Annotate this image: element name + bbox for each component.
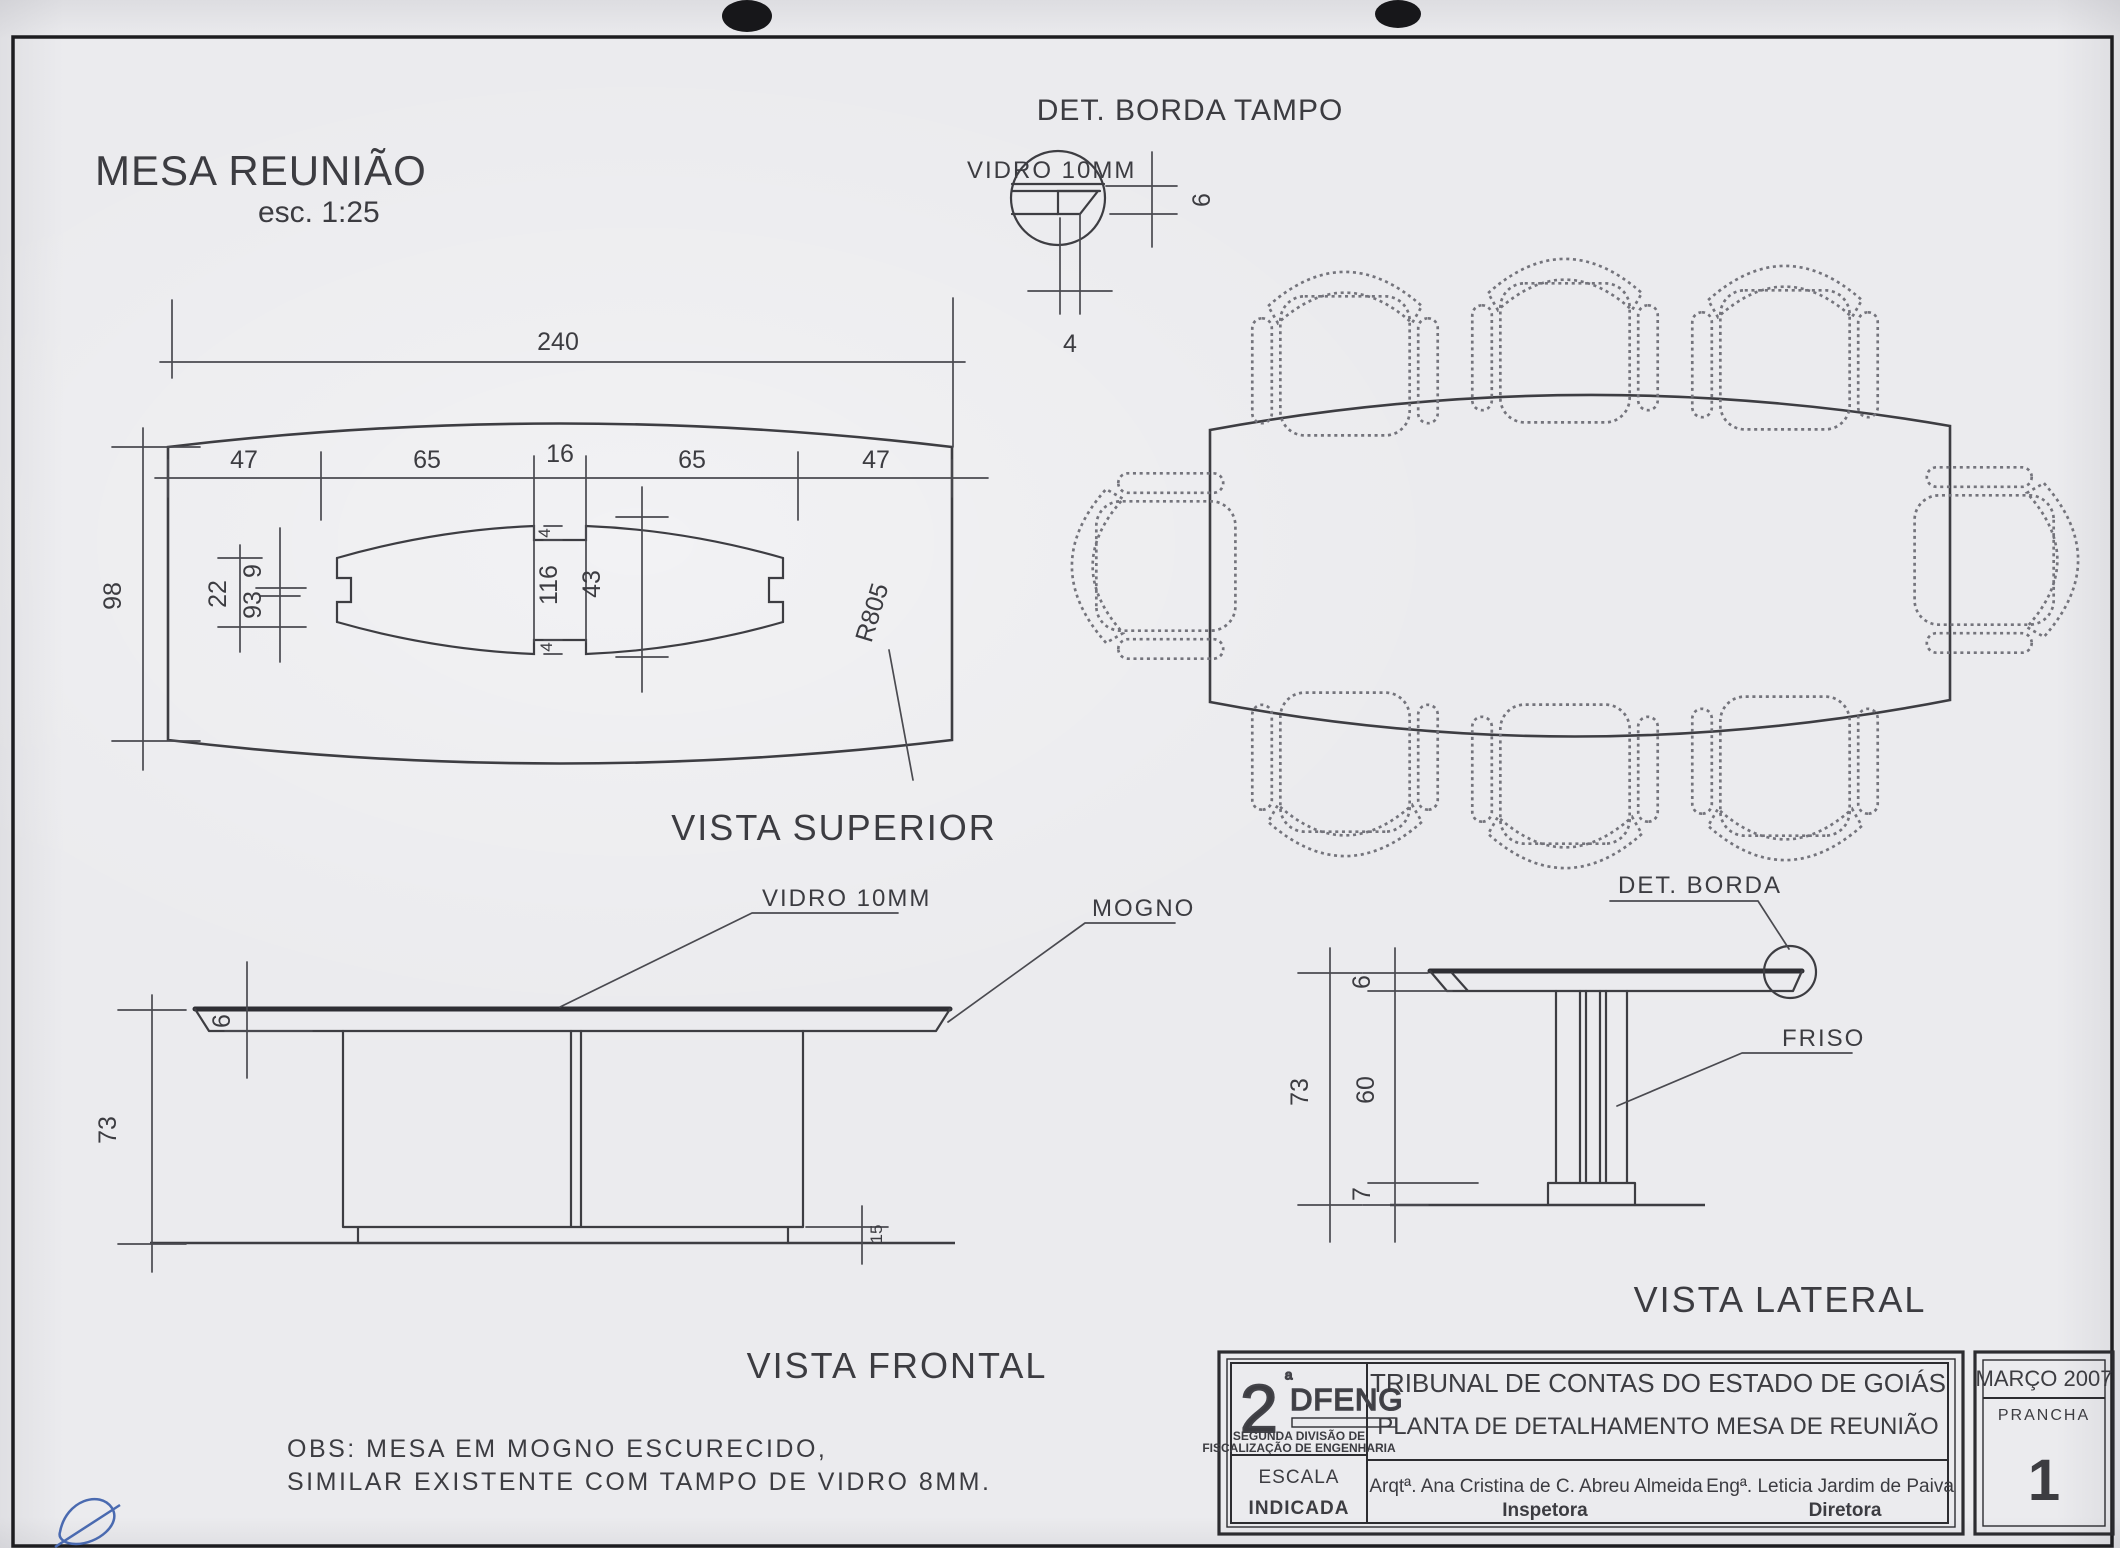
note-line-2: SIMILAR EXISTENTE COM TAMPO DE VIDRO 8MM… (287, 1468, 991, 1496)
escala-value: INDICADA (1249, 1498, 1350, 1519)
detail-edge-wedge (1058, 191, 1098, 214)
plan-view-with-chairs (1072, 259, 2078, 868)
chair-right-end (1915, 467, 2078, 652)
side-det-borda-label: DET. BORDA (1618, 872, 1782, 899)
front-leader-lines (560, 913, 1175, 1022)
edge-detail-drawing: DET. BORDA TAMPO VIDRO 10MM 6 4 (967, 94, 1343, 358)
top-view-drawing: 240 47 65 16 65 47 98 22 9 93 116 43 4 4… (99, 298, 997, 848)
glass-inset-bottom-edge (337, 622, 783, 654)
escala-label: ESCALA (1259, 1467, 1340, 1488)
side-view-drawing: DET. BORDA FRISO 6 73 60 7 VISTA LATERAL (1286, 872, 1926, 1320)
punch-hole-icon (1375, 0, 1421, 28)
side-dim-7: 7 (1348, 1187, 1376, 1201)
detail-dim-4: 4 (1063, 330, 1077, 358)
role-left: Inspetora (1502, 1500, 1588, 1521)
side-pedestal-friso (1548, 991, 1635, 1205)
dim-65-right: 65 (678, 446, 706, 474)
dim-65-left: 65 (413, 446, 441, 474)
front-dim-15: 15 (867, 1225, 886, 1244)
dim-116: 116 (535, 565, 563, 605)
glass-inset-top-edge (337, 526, 783, 558)
detail-dim-6: 6 (1188, 193, 1216, 207)
edge-detail-title: DET. BORDA TAMPO (1037, 94, 1344, 127)
drawing-canvas: MESA REUNIÃO esc. 1:25 DET. BORDA TAMPO … (0, 0, 2120, 1548)
drawing-title: PLANTA DE DETALHAMENTO MESA DE REUNIÃO (1377, 1413, 1938, 1440)
top-view-caption: VISTA SUPERIOR (671, 807, 996, 848)
chair-bottom-3 (1692, 697, 1877, 860)
scanned-drawing-sheet: MESA REUNIÃO esc. 1:25 DET. BORDA TAMPO … (0, 0, 2120, 1548)
punch-hole-icon (722, 0, 772, 32)
side-dim-73: 73 (1286, 1078, 1314, 1106)
dim-16: 16 (546, 440, 574, 468)
side-tabletop-slab (1430, 971, 1802, 991)
scale-note: esc. 1:25 (258, 196, 380, 229)
dim-240: 240 (537, 328, 579, 356)
front-vidro-label: VIDRO 10MM (762, 885, 931, 912)
front-pedestal (343, 1031, 803, 1243)
side-dim-60: 60 (1352, 1076, 1380, 1104)
author-right: Engª. Leticia Jardim de Paiva (1706, 1476, 1954, 1497)
side-leader-lines (1610, 901, 1852, 1106)
radius-leader-line (889, 650, 913, 780)
title-block: 2 ª DFENG SEGUNDA DIVISÃO DE FISCALIZAÇÃ… (1202, 1352, 2113, 1534)
radius-label: R805 (850, 580, 894, 645)
chair-bottom-1 (1252, 693, 1437, 856)
front-view-drawing: VIDRO 10MM MOGNO 6 73 15 VISTA FRONTAL (94, 885, 1195, 1386)
sheet-number-label: PRANCHA (1998, 1407, 2090, 1424)
dim-22: 22 (204, 580, 232, 608)
dim-9: 9 (239, 564, 267, 578)
side-friso-label: FRISO (1782, 1025, 1865, 1052)
front-dim-6: 6 (208, 1014, 236, 1028)
dim-47-left: 47 (230, 446, 258, 474)
pen-scribble-icon (55, 1499, 120, 1547)
dim-47-right: 47 (862, 446, 890, 474)
dim-43: 43 (578, 570, 606, 598)
dim-93: 93 (239, 591, 267, 619)
dim-notch-top: 4 (535, 528, 554, 537)
plan-table-outline (1210, 395, 1950, 737)
dim-notch-bottom: 4 (537, 642, 556, 651)
dim-98: 98 (99, 582, 127, 610)
glass-inset-left-end (337, 558, 351, 622)
page-title: MESA REUNIÃO (95, 147, 427, 194)
front-view-caption: VISTA FRONTAL (747, 1345, 1048, 1386)
author-left: Arqtª. Ana Cristina de C. Abreu Almeida (1369, 1476, 1703, 1497)
side-dim-6: 6 (1348, 975, 1376, 989)
note-line-1: OBS: MESA EM MOGNO ESCURECIDO, (287, 1435, 827, 1463)
chair-bottom-2 (1472, 705, 1657, 868)
glass-inset-right-end (769, 558, 783, 622)
side-view-caption: VISTA LATERAL (1634, 1279, 1927, 1320)
role-right: Diretora (1809, 1500, 1882, 1521)
org-name: TRIBUNAL DE CONTAS DO ESTADO DE GOIÁS (1370, 1368, 1946, 1398)
front-tabletop-slab (195, 1009, 950, 1031)
punch-holes (722, 0, 1421, 32)
front-mogno-label: MOGNO (1092, 895, 1195, 922)
notes-block: OBS: MESA EM MOGNO ESCURECIDO, SIMILAR E… (287, 1435, 991, 1496)
edge-detail-vidro-label: VIDRO 10MM (967, 157, 1136, 184)
date-label: MARÇO 2007 (1976, 1366, 2113, 1391)
division-line-2: FISCALIZAÇÃO DE ENGENHARIA (1202, 1440, 1396, 1455)
sheet-number-value: 1 (2028, 1448, 2060, 1513)
front-dim-73: 73 (94, 1116, 122, 1144)
